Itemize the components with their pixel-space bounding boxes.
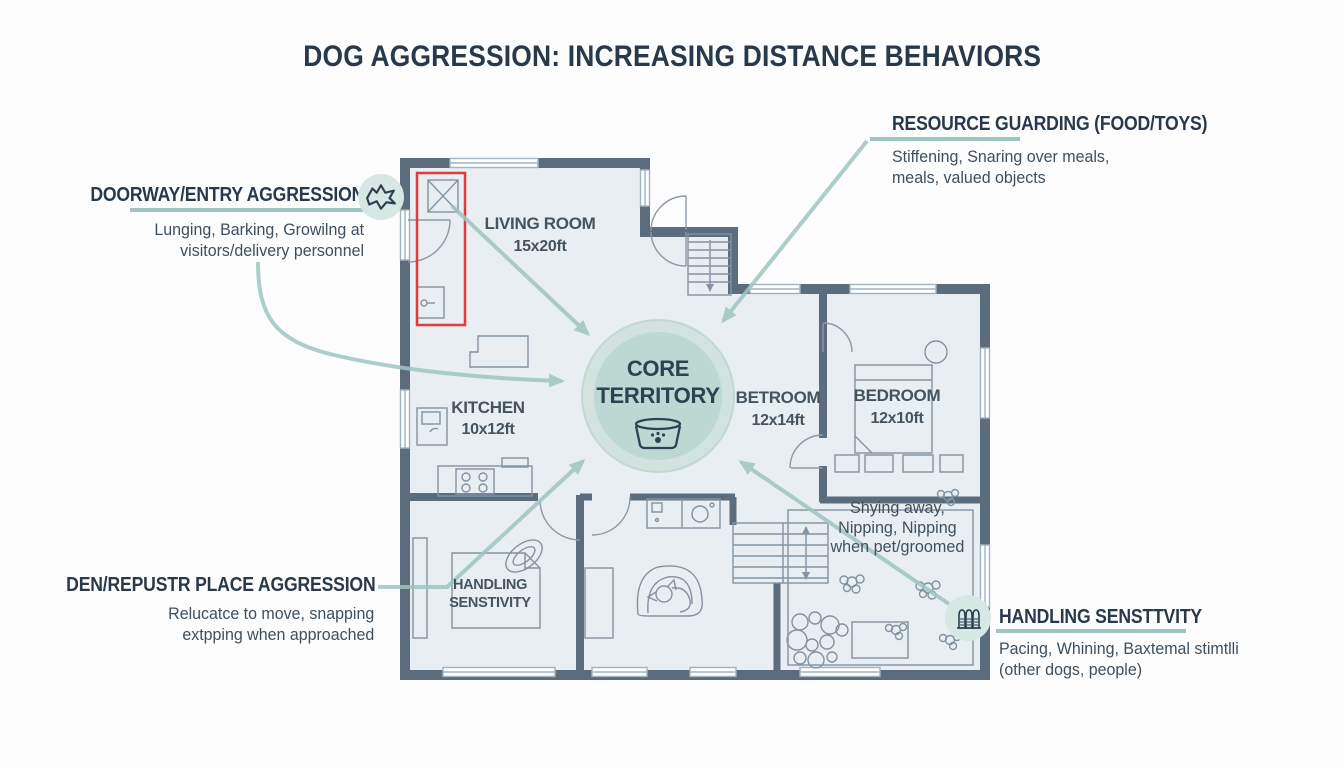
handling-icon-badge	[945, 595, 991, 641]
doorway-icon-badge	[358, 174, 404, 220]
handling-annotation-text: Pacing, Whining, Baxtemal stimtlli (othe…	[999, 638, 1309, 680]
den-annotation-text: Relucatce to move, snapping extpping whe…	[120, 603, 374, 645]
core-territory-label: CORE	[627, 356, 689, 381]
handling-room-label: HANDLING	[453, 577, 527, 593]
bedroom-label: BEDROOM	[854, 386, 941, 405]
betroom-label: BETROOM	[736, 388, 821, 407]
kitchen-size: 10x12ft	[461, 421, 515, 438]
core-territory-label: TERRITORY	[596, 383, 720, 408]
doorway-annotation-heading: DOORWAY/ENTRY AGGRESSION	[53, 184, 364, 207]
handling-room-label: SENSTIVITY	[449, 595, 531, 611]
dog-head-icon	[365, 183, 397, 211]
shying-note: Shying away, Nipping, Nipping when pet/g…	[790, 498, 1005, 557]
resource-annotation-text: Stiffening, Snaring over meals, meals, v…	[892, 146, 1192, 188]
living-room-label: LIVING ROOM	[485, 214, 596, 233]
handling-underline	[996, 629, 1186, 633]
grooming-brushes-icon	[954, 604, 982, 632]
doorway-underline	[130, 208, 363, 212]
living-room-size: 15x20ft	[513, 238, 567, 255]
resource-annotation-heading: RESOURCE GUARDING (FOOD/TOYS)	[892, 113, 1250, 136]
resource-underline	[870, 137, 1020, 141]
kitchen-label: KITCHEN	[451, 398, 524, 417]
betroom-size: 12x14ft	[751, 412, 805, 429]
infographic-canvas: CORE TERRITORY LIVING ROOM 15x20ft KI	[0, 0, 1344, 768]
bedroom-size: 12x10ft	[870, 410, 924, 427]
handling-annotation-heading: HANDLING SENSTTVITY	[999, 606, 1230, 629]
core-territory: CORE TERRITORY	[582, 320, 734, 472]
page-title: DOG AGGRESSION: INCREASING DISTANCE BEHA…	[0, 40, 1344, 74]
den-annotation-heading: DEN/REPUSTR PLACE AGGRESSION	[24, 574, 375, 597]
doorway-annotation-text: Lunging, Barking, Growilng at visitors/d…	[100, 219, 364, 261]
